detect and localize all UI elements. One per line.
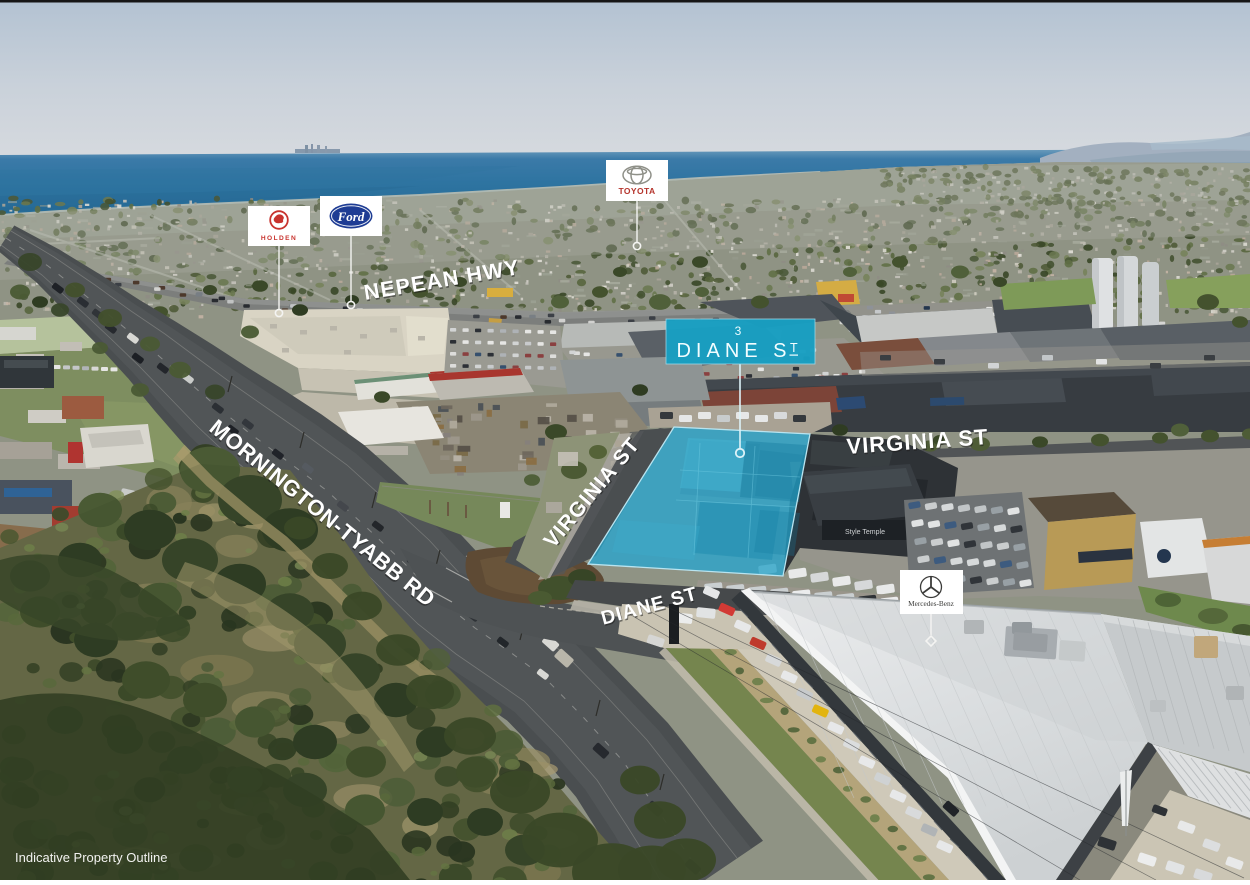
svg-text:TOYOTA: TOYOTA xyxy=(618,186,655,196)
svg-text:T: T xyxy=(790,341,798,355)
svg-text:Indicative Property Outline: Indicative Property Outline xyxy=(15,850,167,865)
svg-text:HOLDEN: HOLDEN xyxy=(261,235,297,242)
svg-text:Ford: Ford xyxy=(337,209,365,224)
svg-text:Style Temple: Style Temple xyxy=(845,529,885,536)
svg-text:DIANE S: DIANE S xyxy=(676,340,791,362)
svg-text:3: 3 xyxy=(735,324,742,338)
svg-text:Mercedes-Benz: Mercedes-Benz xyxy=(908,599,955,608)
